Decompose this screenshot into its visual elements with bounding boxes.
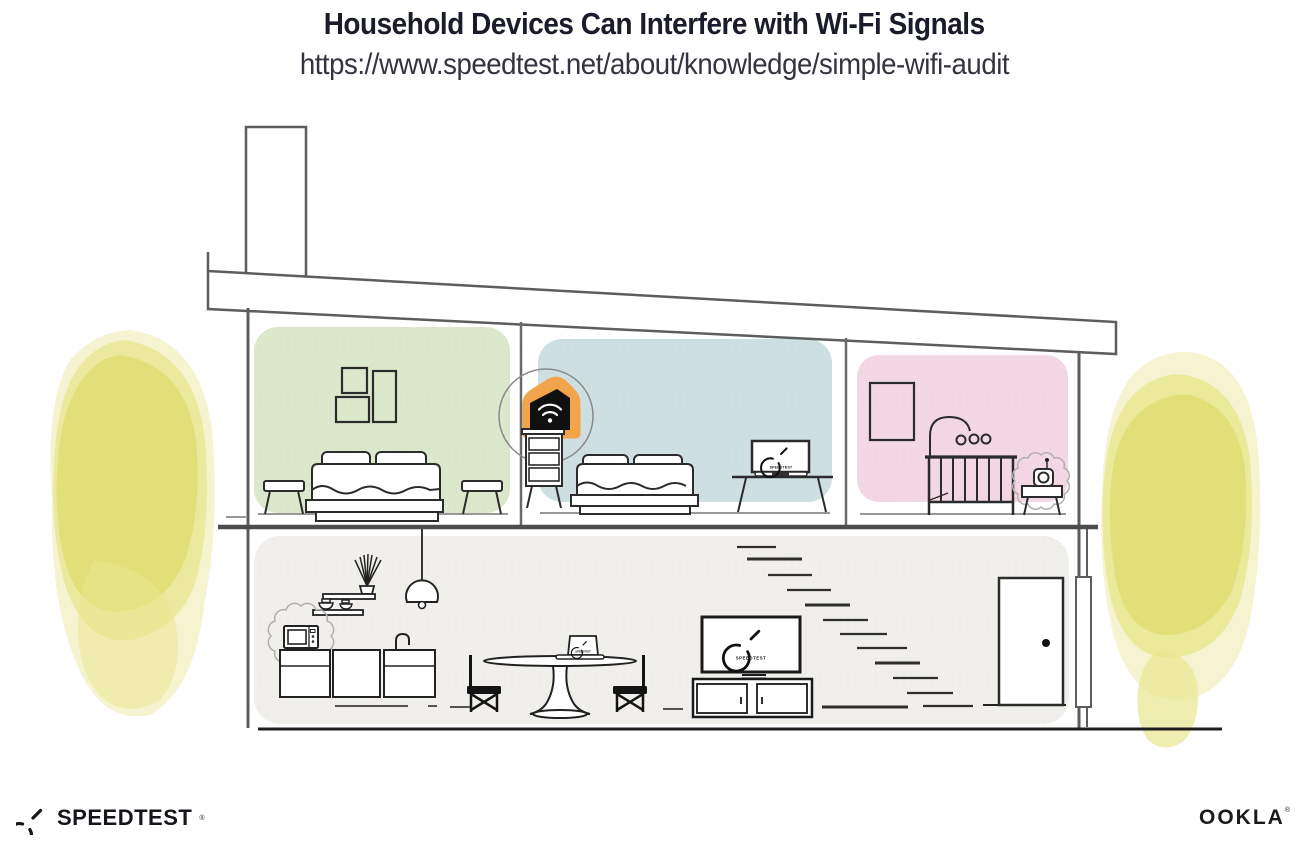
- dining-laptop-label: SPEEDTEST: [575, 650, 591, 654]
- tv-screen-label: SPEEDTEST: [736, 656, 767, 661]
- mattress: [577, 464, 693, 495]
- table-base: [533, 710, 587, 718]
- tree-right-core: [1110, 395, 1246, 635]
- speedtest-gauge-icon: [16, 801, 50, 835]
- tv-screen: [702, 617, 800, 672]
- lamp-shade: [406, 580, 438, 602]
- tree-right: [1101, 352, 1260, 748]
- dresser-drawer: [529, 453, 559, 465]
- house-illustration: SPEEDTEST: [0, 0, 1308, 861]
- chair-seat: [613, 686, 647, 694]
- door-knob: [1042, 639, 1050, 647]
- tv-area: SPEEDTEST: [693, 617, 812, 717]
- side-table-top: [1022, 486, 1062, 497]
- side-table-leg: [1056, 497, 1060, 515]
- shelf-upper: [323, 594, 375, 599]
- microwave-window: [288, 630, 306, 644]
- infographic-page: Household Devices Can Interfere with Wi-…: [0, 0, 1308, 861]
- speedtest-logo: SPEEDTEST®: [16, 801, 204, 835]
- laptop-screen-label: SPEEDTEST: [770, 466, 793, 470]
- chair-back: [469, 655, 472, 688]
- ookla-reg-mark: ®: [1285, 807, 1290, 814]
- cabinet-middle: [333, 650, 380, 697]
- downspout-pipe: [1076, 577, 1091, 707]
- lamp-bulb: [419, 602, 426, 609]
- cabinet-left: [280, 650, 330, 697]
- console-door-left: [697, 684, 747, 713]
- dresser-leg: [527, 486, 532, 508]
- ookla-wordmark: OOKLA: [1199, 806, 1285, 829]
- door-panel: [999, 578, 1063, 705]
- tv-console: [693, 679, 812, 717]
- tree-left: [50, 330, 214, 716]
- dresser-drawer: [529, 468, 559, 481]
- bed-platform: [571, 495, 698, 506]
- chair-seat: [467, 686, 501, 694]
- cabinet-right: [384, 650, 435, 697]
- ookla-logo: OOKLA®: [1199, 806, 1290, 830]
- kitchen-cabinets: [280, 650, 435, 697]
- shelf-lower: [313, 610, 363, 615]
- bed-blue: [571, 455, 698, 514]
- speedtest-wordmark: SPEEDTEST: [57, 805, 192, 831]
- mattress: [312, 464, 440, 500]
- chair-back: [642, 655, 645, 688]
- speedtest-reg-mark: ®: [199, 815, 204, 822]
- microwave: [284, 626, 318, 648]
- baby-monitor-antenna-tip: [1045, 458, 1049, 462]
- dresser: [522, 429, 564, 508]
- console-door-right: [757, 684, 807, 713]
- bed-base: [316, 512, 438, 521]
- bed-base: [580, 506, 690, 514]
- dresser-drawer: [529, 438, 559, 450]
- bed-platform: [306, 500, 443, 512]
- plant-pot: [360, 586, 374, 594]
